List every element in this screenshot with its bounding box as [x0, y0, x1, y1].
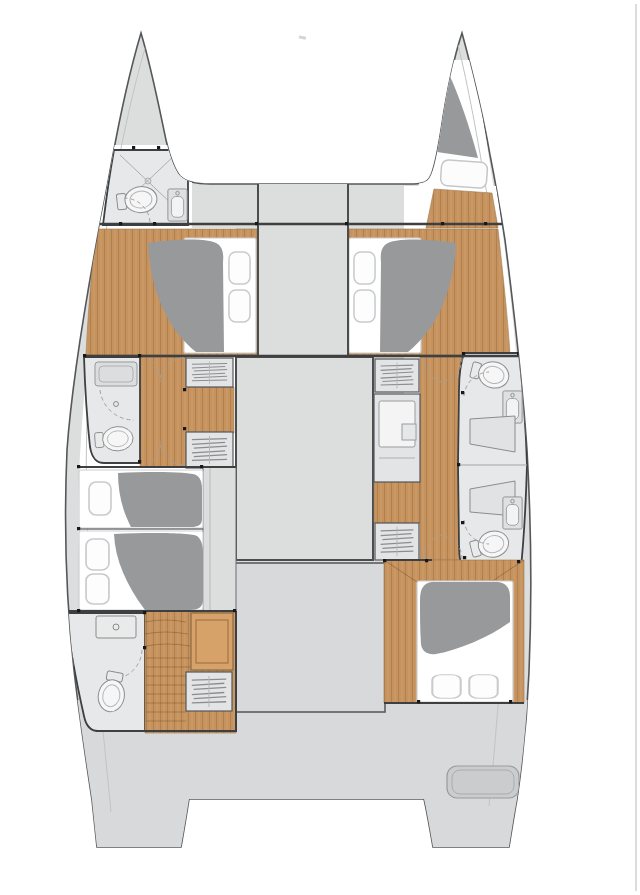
page-speck	[299, 35, 306, 39]
saloon-block	[236, 357, 373, 560]
stern-deck-hatch	[447, 766, 519, 798]
sink	[503, 497, 522, 529]
inboard-ledge	[203, 467, 236, 611]
port-aft-cabin	[79, 467, 236, 611]
pillow	[432, 675, 460, 699]
port-aft-head	[66, 613, 145, 731]
berth-duvet	[118, 472, 202, 527]
pillow	[89, 482, 111, 515]
starboard-heads	[458, 353, 527, 578]
starboard-forward-cabin	[348, 229, 510, 355]
deck-hatch	[440, 159, 488, 188]
pillow	[229, 252, 250, 284]
floorplan-page	[0, 0, 640, 895]
port-forward-cabin	[86, 229, 257, 355]
desk-item	[402, 424, 416, 440]
sink-counter	[96, 616, 136, 638]
starboard-aft-cabin	[384, 560, 524, 703]
pillow	[229, 290, 250, 322]
pillow	[86, 539, 109, 570]
port-aft-stairs	[145, 611, 236, 733]
port-mid-corridor	[140, 357, 234, 468]
pillow	[469, 675, 497, 699]
port-mid-head	[84, 357, 140, 463]
foredeck-column	[258, 179, 348, 357]
pillow	[354, 290, 375, 322]
wood-cabinet	[191, 613, 233, 670]
cockpit-block	[222, 563, 385, 712]
port-bow-head	[103, 150, 188, 225]
sink	[168, 189, 187, 221]
pillow	[354, 252, 375, 284]
starboard-mid-corridor	[374, 357, 463, 560]
pillow	[86, 574, 109, 604]
